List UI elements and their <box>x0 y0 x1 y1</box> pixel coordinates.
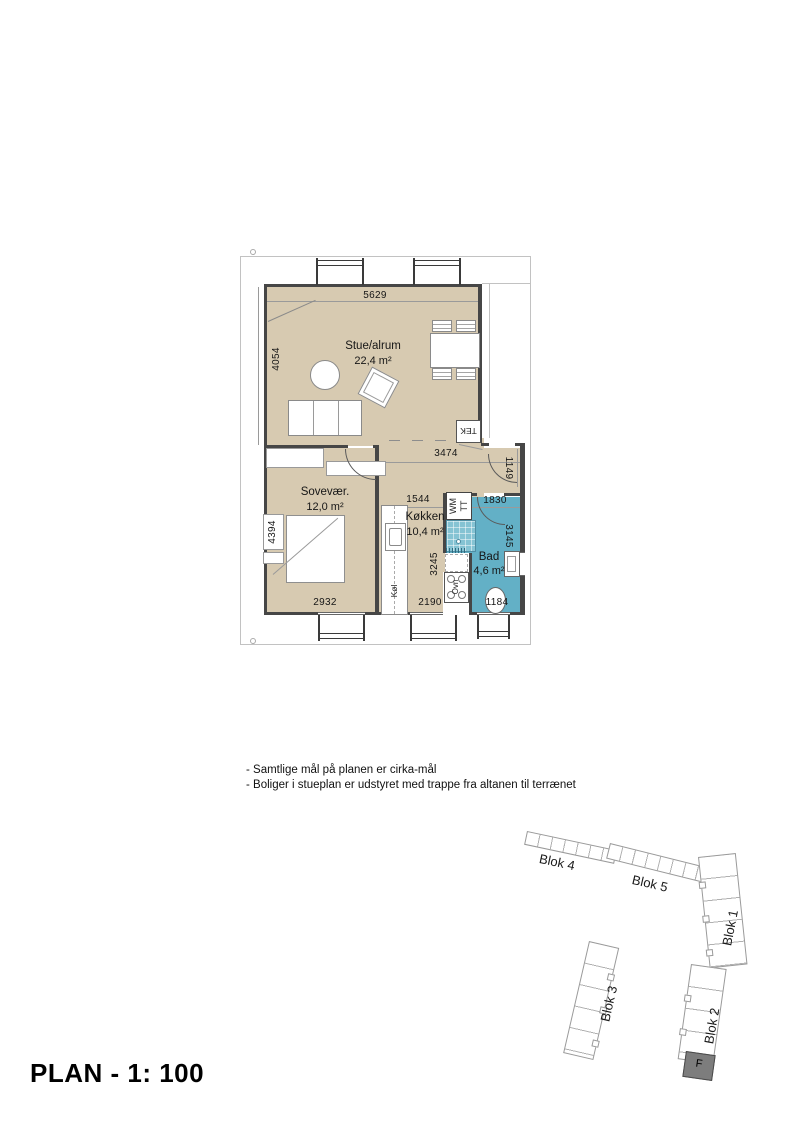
room-living-name: Stue/alrum <box>333 340 413 353</box>
bed <box>286 515 345 583</box>
sofa <box>288 400 362 436</box>
dining-chair <box>456 368 476 380</box>
wall <box>264 284 267 447</box>
balcony-railing <box>477 615 510 639</box>
dining-chair <box>432 320 452 332</box>
room-kitchen-name: Køkken <box>390 511 460 524</box>
wall <box>520 443 525 613</box>
survey-marker <box>250 249 256 255</box>
room-bath-area: 4,6 m² <box>464 565 514 578</box>
wall <box>481 443 489 446</box>
dryer-label: TT <box>459 493 469 519</box>
room-bedroom-name: Sovevær. <box>285 486 365 499</box>
dim-line <box>258 287 259 445</box>
neighbor-top-line <box>482 283 531 284</box>
dim-entry-right: 1149 <box>502 448 514 488</box>
dim-line <box>517 449 518 487</box>
bath-mat <box>446 548 466 553</box>
dim-bath-bottom: 1184 <box>475 597 519 609</box>
room-bedroom-area: 12,0 m² <box>285 501 365 514</box>
dim-living-left: 4054 <box>271 339 283 379</box>
site-plan: F Blok 4 Blok 5 Blok 1 Blok 2 Blok 3 <box>0 800 800 1100</box>
blok-5-label: Blok 5 <box>631 872 670 895</box>
dining-chair <box>432 368 452 380</box>
dim-kitchen-right: 3245 <box>429 544 441 584</box>
dim-kitchen-bottom: 2190 <box>408 597 452 609</box>
shower-drain <box>456 539 461 544</box>
room-living-area: 22,4 m² <box>333 355 413 368</box>
note-line-1: - Samtlige mål på planen er cirka-mål <box>246 763 436 777</box>
dining-chair <box>456 320 476 332</box>
balcony-railing <box>413 258 461 285</box>
dim-bath-top: 1830 <box>477 495 513 507</box>
note-line-2: - Boliger i stueplan er udstyret med tra… <box>246 778 576 792</box>
dim-kitchen-top: 1544 <box>398 494 438 506</box>
balcony-railing <box>316 258 364 285</box>
dim-living-top: 5629 <box>353 290 397 302</box>
drawing-sheet: TEK Køl Ovn WM TT <box>0 0 800 1131</box>
opening-dashes <box>389 440 447 441</box>
page-title: PLAN - 1: 100 <box>30 1058 204 1089</box>
fridge-label: Køl <box>389 578 399 604</box>
dim-bedroom-left: 4394 <box>267 512 279 552</box>
window <box>520 552 525 576</box>
dim-bedroom-bottom: 2932 <box>303 597 347 609</box>
scale-bar: 0 1 2 3 4 5 M <box>0 700 800 760</box>
dim-bath-right: 3145 <box>502 516 514 556</box>
wardrobe <box>266 448 324 468</box>
tech-closet-label: TEK <box>456 426 481 436</box>
room-kitchen-area: 10,4 m² <box>390 526 460 539</box>
balcony-railing <box>410 615 457 641</box>
floor-plan: TEK Køl Ovn WM TT <box>0 0 800 700</box>
dim-hall: 3474 <box>424 448 468 460</box>
neighbor-wall-line <box>489 284 490 438</box>
dining-table <box>430 333 480 368</box>
oven-label: Ovn <box>451 574 461 600</box>
survey-marker <box>250 638 256 644</box>
balcony-railing <box>318 615 365 641</box>
room-bath-name: Bad <box>467 551 511 564</box>
window-sill <box>263 552 284 564</box>
